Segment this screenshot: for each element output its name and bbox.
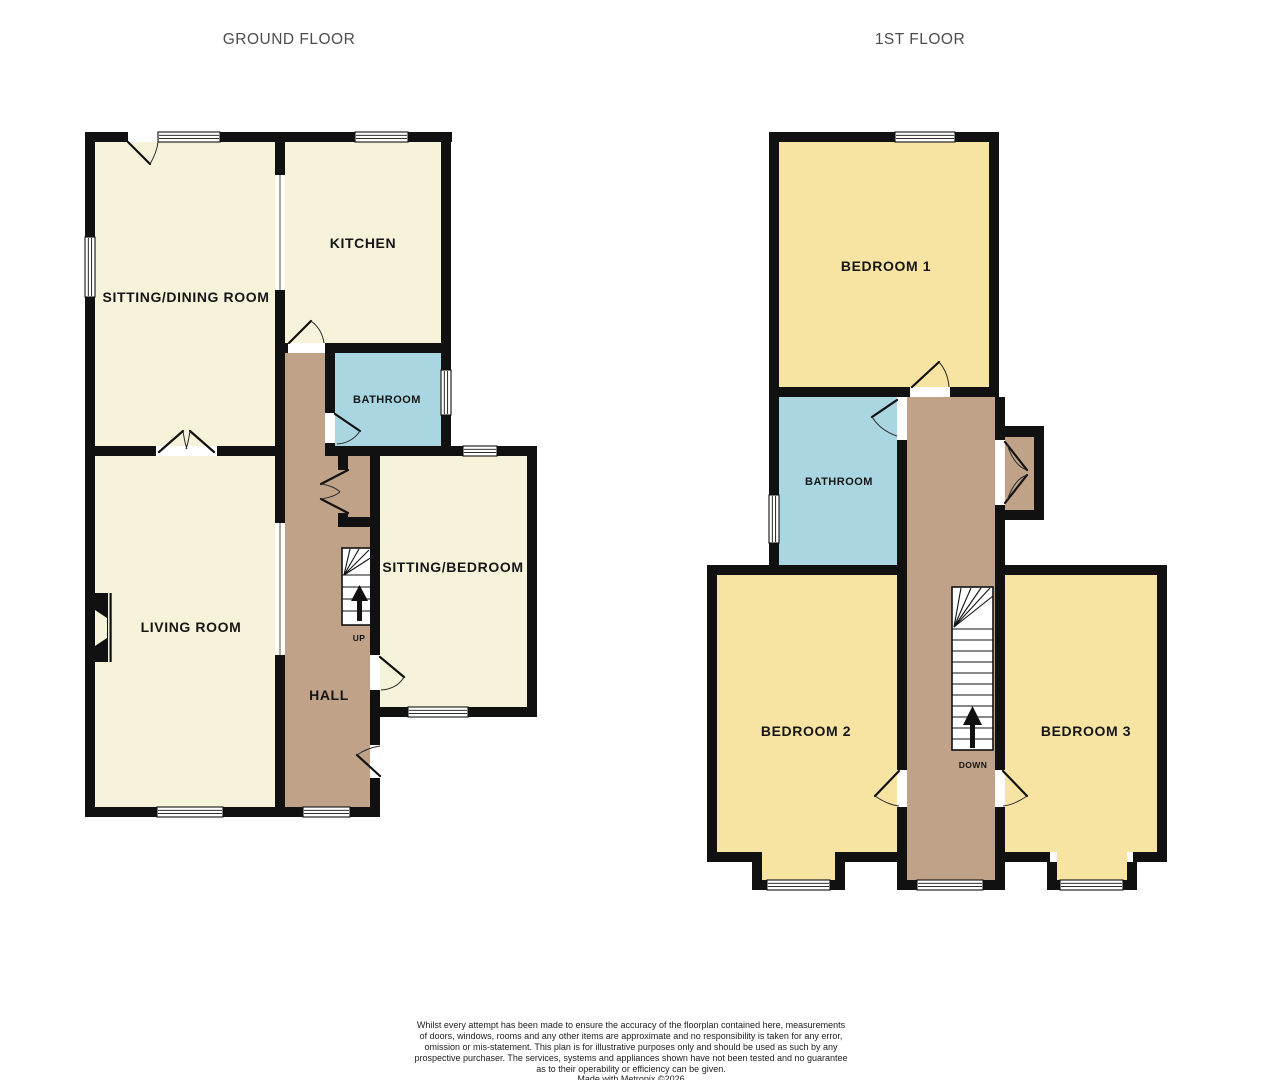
label-bathroom-1f: BATHROOM — [805, 476, 873, 488]
ground-floor-title: GROUND FLOOR — [223, 31, 356, 48]
room-bedroom2 — [717, 575, 897, 852]
window — [85, 237, 95, 297]
label-bedroom3: BEDROOM 3 — [1041, 723, 1131, 739]
room-sitting-bedroom — [380, 456, 527, 707]
disclaimer-line: prospective purchaser. The services, sys… — [414, 1053, 847, 1063]
window — [303, 807, 350, 817]
metropix-credit: Made with Metropix ©2026 — [577, 1074, 684, 1080]
window — [917, 880, 983, 890]
ground-floor-plan: SITTING/DINING ROOM KITCHEN BATHROOM SIT… — [85, 132, 537, 817]
window — [158, 132, 220, 142]
floorplan-svg: SITTING/DINING ROOM KITCHEN BATHROOM SIT… — [0, 0, 1263, 1080]
window — [895, 132, 955, 142]
window — [769, 495, 779, 543]
window — [157, 807, 223, 817]
first-floor-plan: BEDROOM 1 BATHROOM BEDROOM 2 BEDROOM 3 D… — [707, 132, 1167, 890]
window — [1060, 880, 1123, 890]
label-bathroom-gf: BATHROOM — [353, 394, 421, 406]
window — [463, 446, 497, 456]
label-kitchen: KITCHEN — [330, 235, 396, 251]
label-stairs-down: DOWN — [959, 760, 988, 770]
label-living: LIVING ROOM — [141, 619, 242, 635]
disclaimer-line: Whilst every attempt has been made to en… — [417, 1020, 846, 1030]
staircase-up — [342, 548, 373, 625]
floorplan-page: SITTING/DINING ROOM KITCHEN BATHROOM SIT… — [0, 0, 1263, 1080]
room-bedroom3-bay — [1057, 852, 1127, 880]
room-bedroom2-bay — [762, 852, 835, 880]
label-sitting-bedroom: SITTING/BEDROOM — [382, 559, 523, 575]
label-sitting-dining: SITTING/DINING ROOM — [103, 289, 270, 305]
first-floor-title: 1ST FLOOR — [875, 31, 965, 48]
label-bedroom2: BEDROOM 2 — [761, 723, 851, 739]
floor-titles: GROUND FLOOR 1ST FLOOR — [223, 31, 965, 48]
first-floor-rooms — [717, 142, 1157, 880]
window — [441, 370, 451, 415]
window — [408, 707, 468, 717]
room-bedroom3 — [1005, 575, 1157, 852]
label-bedroom1: BEDROOM 1 — [841, 258, 931, 274]
disclaimer-line: omission or mis-statement. This plan is … — [424, 1042, 838, 1052]
staircase-down — [952, 587, 993, 750]
disclaimer: Whilst every attempt has been made to en… — [414, 1020, 847, 1080]
window — [767, 880, 830, 890]
disclaimer-line: of doors, windows, rooms and any other i… — [420, 1031, 843, 1041]
window — [355, 132, 408, 142]
label-stairs-up: UP — [353, 633, 366, 643]
disclaimer-line: as to their operability or efficiency ca… — [536, 1064, 725, 1074]
label-hall: HALL — [309, 687, 349, 703]
